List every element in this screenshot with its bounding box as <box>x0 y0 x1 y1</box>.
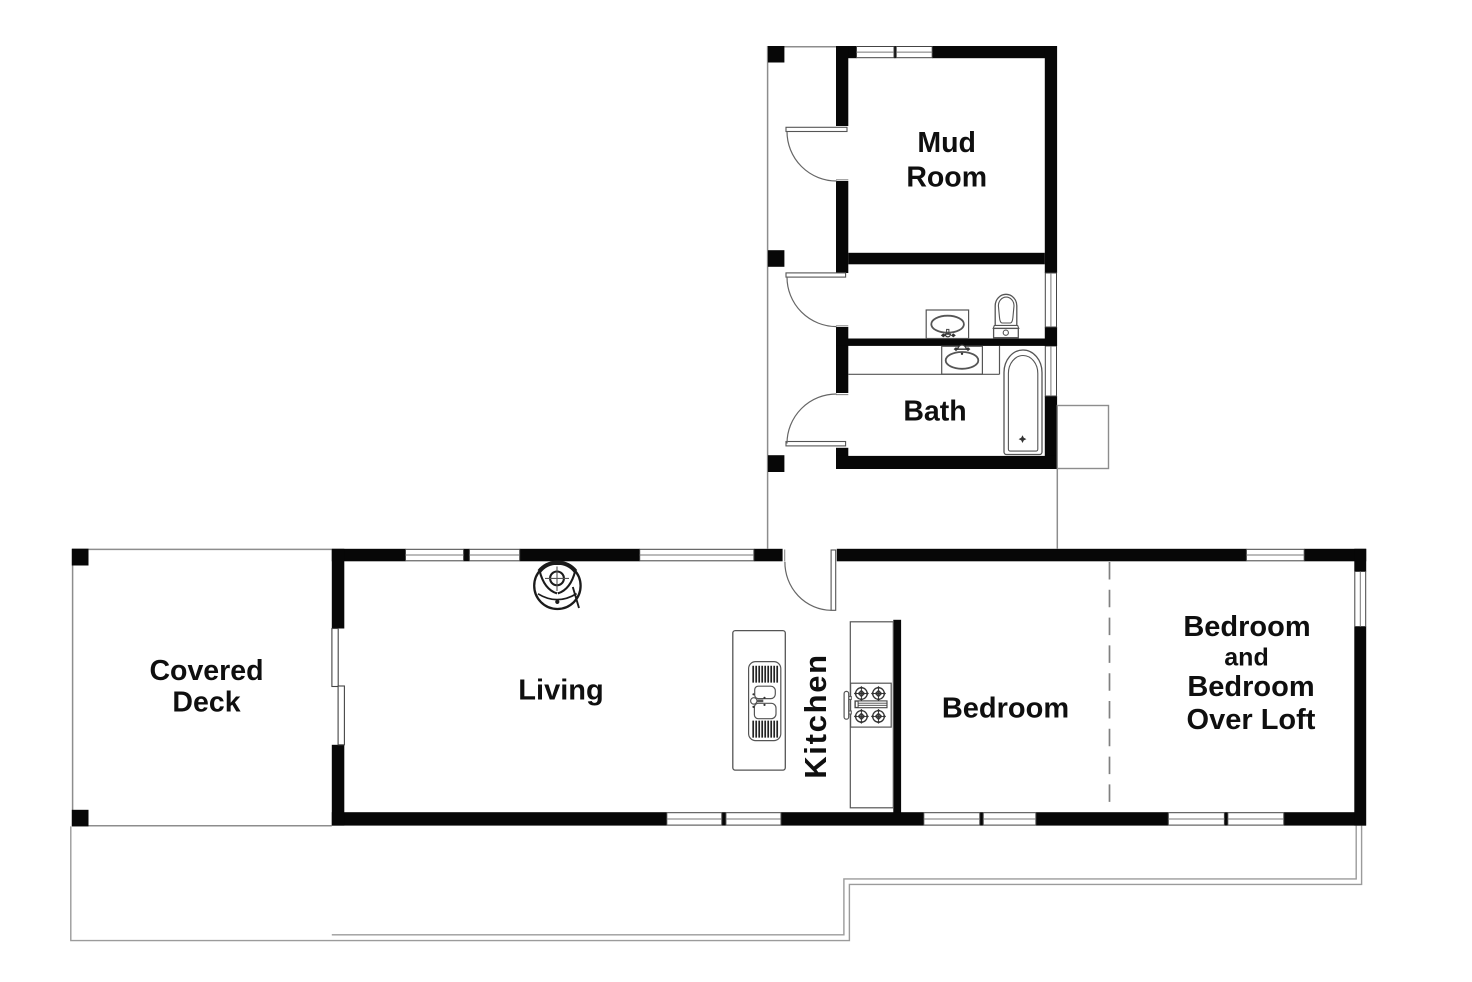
svg-text:Bedroom: Bedroom <box>1183 611 1310 643</box>
svg-text:Bedroom: Bedroom <box>942 693 1069 725</box>
svg-text:Deck: Deck <box>172 687 240 719</box>
svg-text:and: and <box>1224 644 1268 672</box>
svg-text:Bath: Bath <box>903 396 966 428</box>
svg-text:Kitchen: Kitchen <box>798 653 833 779</box>
svg-text:Mud: Mud <box>917 127 976 159</box>
svg-text:Bedroom: Bedroom <box>1187 671 1314 703</box>
svg-text:Room: Room <box>906 162 987 194</box>
svg-text:Over Loft: Over Loft <box>1187 704 1316 736</box>
svg-text:Covered: Covered <box>149 655 263 687</box>
svg-text:Living: Living <box>518 675 603 707</box>
